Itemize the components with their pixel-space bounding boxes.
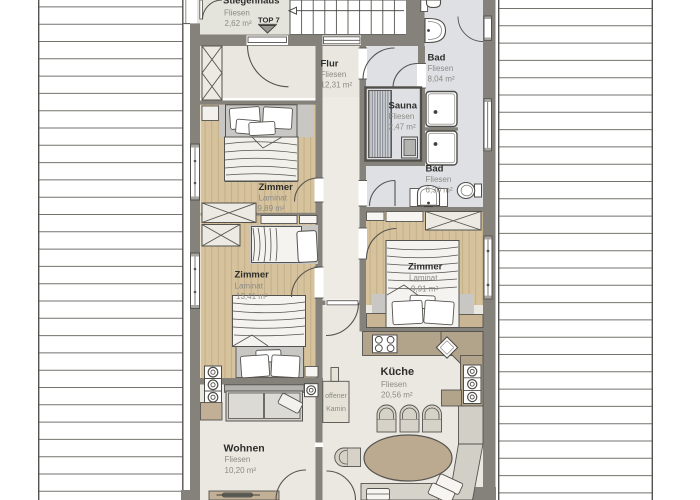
svg-text:Bad: Bad — [426, 164, 444, 175]
svg-text:Laminat: Laminat — [409, 274, 438, 283]
svg-text:Fliesen: Fliesen — [225, 455, 251, 464]
svg-text:10,20 m²: 10,20 m² — [225, 466, 257, 475]
svg-text:2,62 m²: 2,62 m² — [225, 19, 252, 28]
svg-text:Zimmer: Zimmer — [408, 262, 443, 273]
svg-text:Sauna: Sauna — [389, 101, 418, 112]
svg-text:Fliesen: Fliesen — [389, 112, 415, 121]
svg-text:20,56 m²: 20,56 m² — [381, 391, 413, 400]
svg-text:2,47 m²: 2,47 m² — [389, 123, 416, 132]
svg-text:12,31 m²: 12,31 m² — [321, 81, 353, 90]
svg-text:Zimmer: Zimmer — [235, 270, 270, 281]
svg-text:Zimmer: Zimmer — [259, 182, 294, 193]
svg-text:Fliesen: Fliesen — [428, 64, 454, 73]
svg-text:Küche: Küche — [381, 366, 415, 378]
svg-text:offener: offener — [325, 393, 347, 400]
svg-text:Fliesen: Fliesen — [224, 9, 250, 18]
svg-text:Wohnen: Wohnen — [224, 443, 265, 455]
svg-text:Fliesen: Fliesen — [321, 70, 347, 79]
svg-text:Laminat: Laminat — [235, 282, 264, 291]
svg-text:9,89 m²: 9,89 m² — [258, 204, 285, 213]
svg-text:13,41 m²: 13,41 m² — [236, 292, 268, 301]
svg-text:8,04 m²: 8,04 m² — [428, 75, 455, 84]
svg-text:Flur: Flur — [321, 59, 339, 70]
svg-text:TOP 7: TOP 7 — [258, 16, 280, 25]
svg-text:Bad: Bad — [428, 53, 446, 64]
svg-text:Laminat: Laminat — [259, 194, 288, 203]
svg-text:Stiegenhaus: Stiegenhaus — [223, 0, 280, 7]
svg-text:Fliesen: Fliesen — [426, 175, 452, 184]
svg-text:6,30 m²: 6,30 m² — [426, 186, 453, 195]
svg-text:Fliesen: Fliesen — [381, 380, 407, 389]
svg-text:9,91 m²: 9,91 m² — [411, 285, 438, 294]
svg-text:Kamin: Kamin — [326, 406, 346, 413]
